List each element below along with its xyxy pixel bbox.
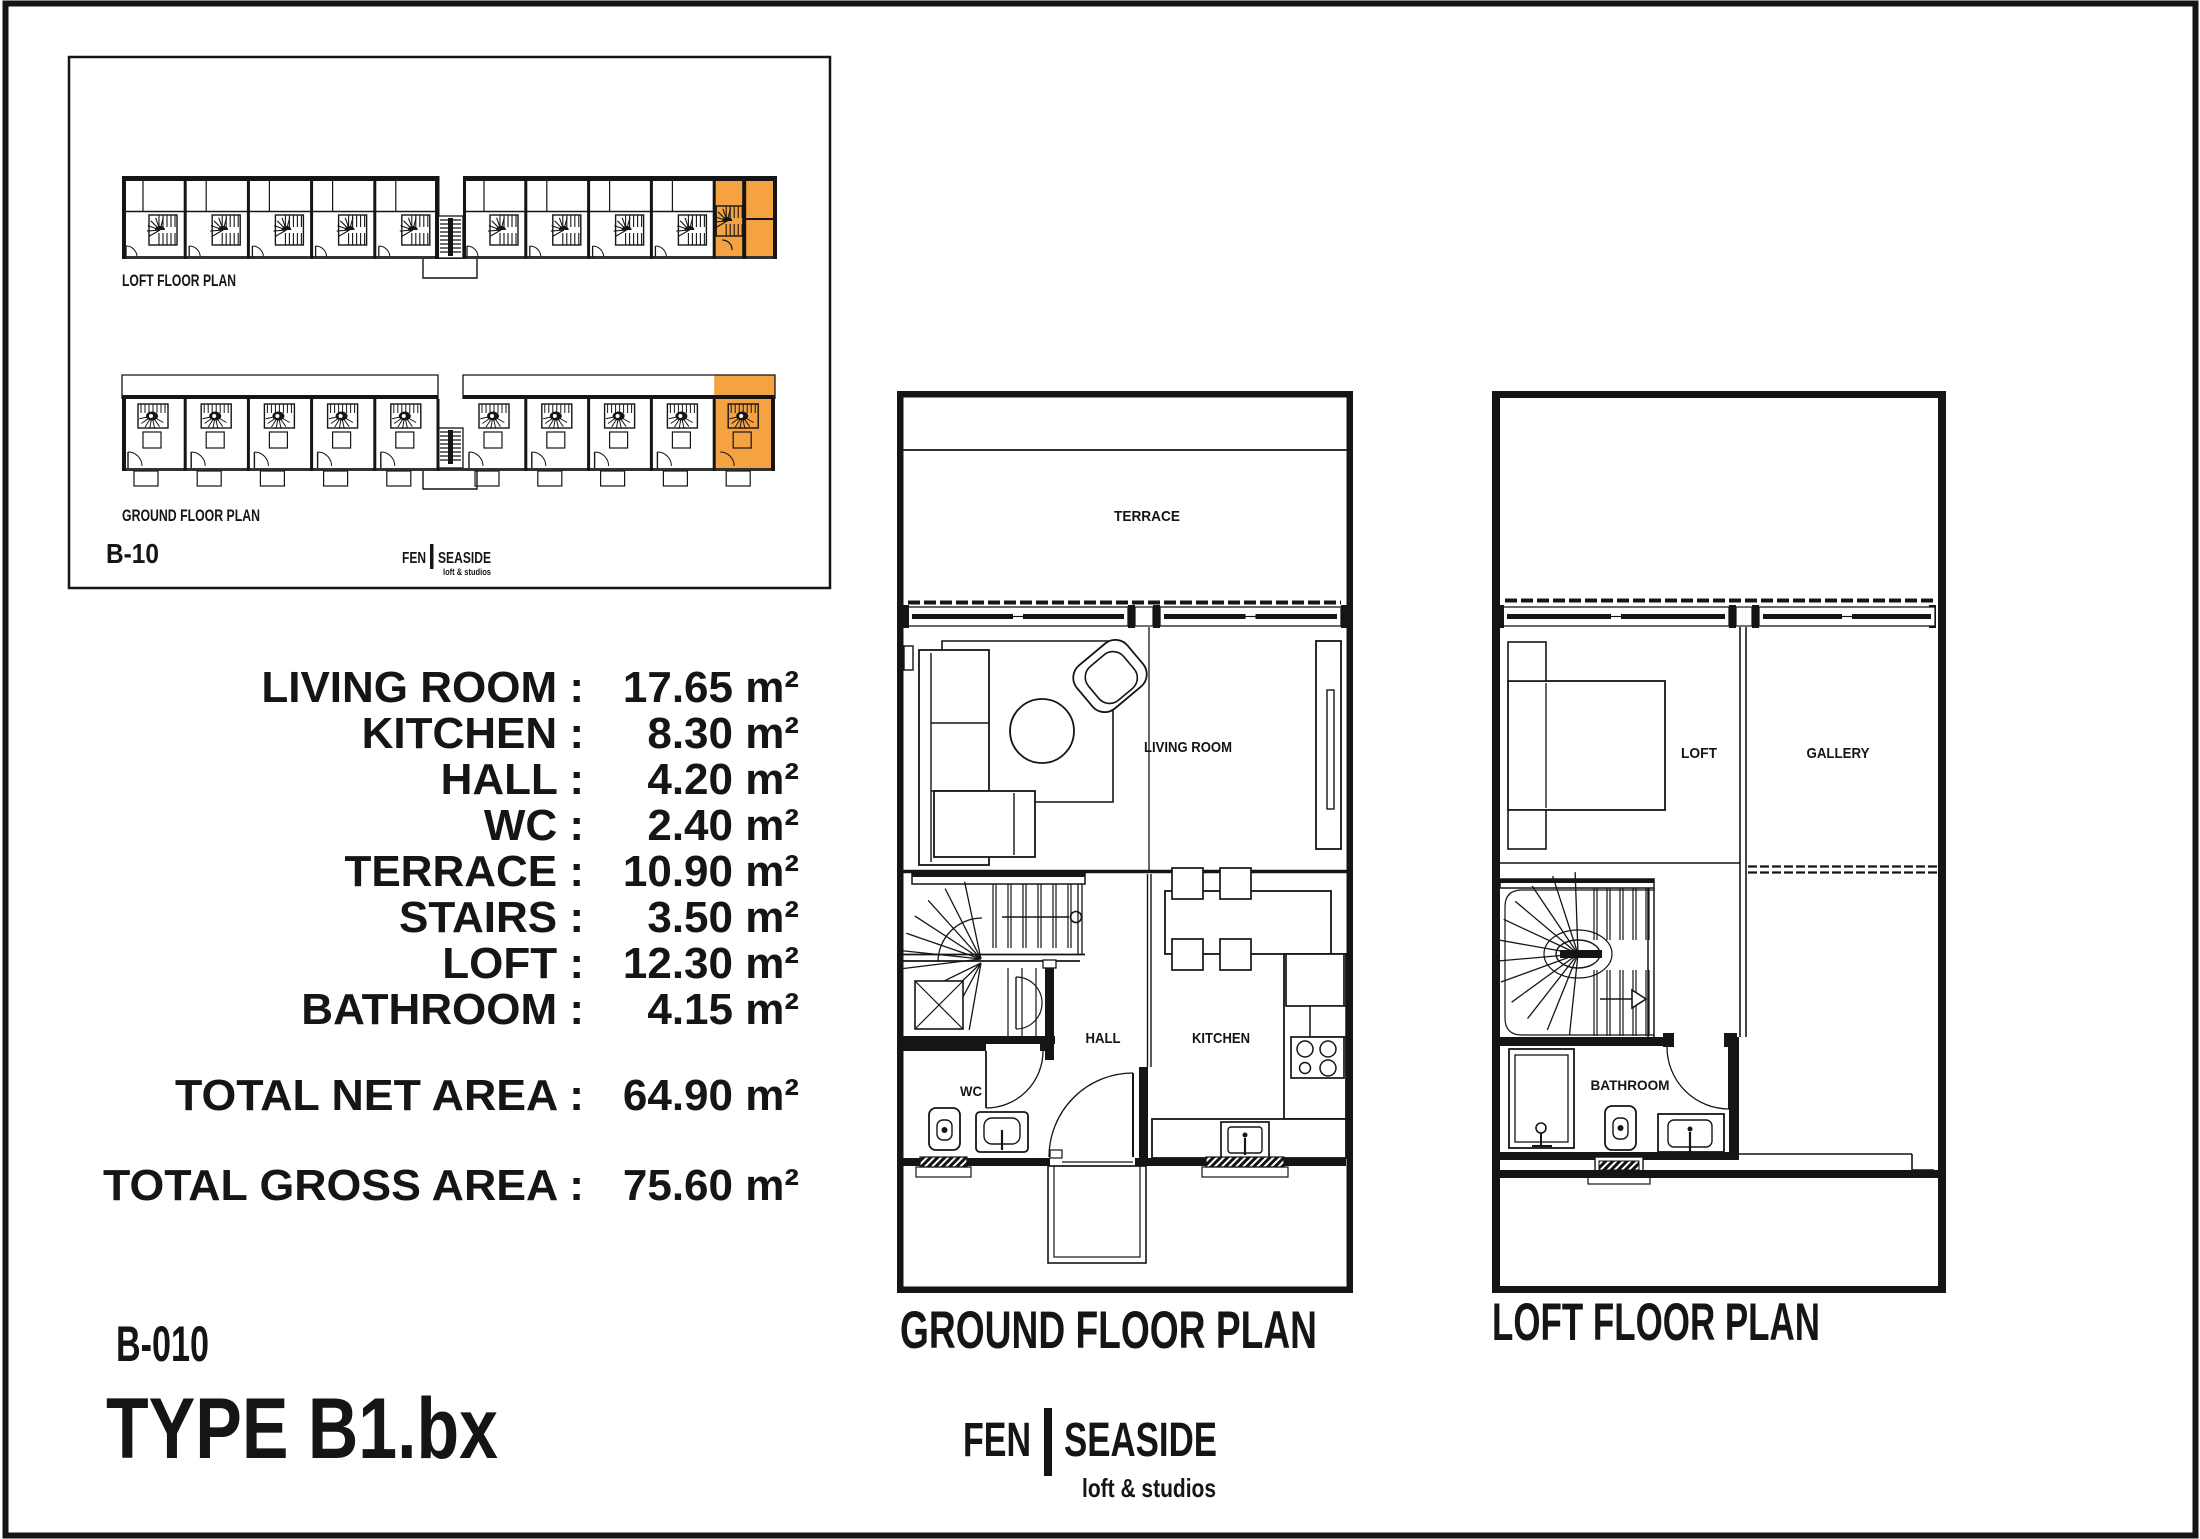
svg-text:GROUND FLOOR PLAN: GROUND FLOOR PLAN [900, 1301, 1317, 1360]
svg-text:LOFT: LOFT [1681, 745, 1717, 762]
svg-text:LOFT FLOOR PLAN: LOFT FLOOR PLAN [122, 271, 236, 290]
svg-text:GROUND FLOOR PLAN: GROUND FLOOR PLAN [122, 506, 260, 525]
svg-text:2.40 m²: 2.40 m² [647, 801, 799, 850]
svg-text:loft & studios: loft & studios [443, 567, 491, 578]
svg-text:TERRACE: TERRACE [1114, 508, 1180, 525]
svg-text:TERRACE :: TERRACE : [344, 847, 584, 896]
svg-text:TOTAL NET AREA :: TOTAL NET AREA : [175, 1071, 584, 1120]
svg-text:SEASIDE: SEASIDE [1064, 1414, 1217, 1467]
svg-text:TYPE B1.bx: TYPE B1.bx [106, 1381, 498, 1477]
svg-text:B-10: B-10 [106, 538, 159, 569]
svg-text:KITCHEN :: KITCHEN : [362, 709, 584, 758]
svg-text:3.50 m²: 3.50 m² [647, 893, 799, 942]
svg-text:GALLERY: GALLERY [1807, 745, 1870, 762]
svg-text:B-010: B-010 [116, 1316, 209, 1372]
svg-text:HALL: HALL [1086, 1030, 1121, 1047]
svg-text:WC :: WC : [484, 801, 584, 850]
svg-text:4.20 m²: 4.20 m² [647, 755, 799, 804]
svg-text:LOFT :: LOFT : [442, 939, 584, 988]
svg-text:BATHROOM :: BATHROOM : [301, 985, 584, 1034]
svg-text:64.90 m²: 64.90 m² [623, 1071, 799, 1120]
svg-text:BATHROOM: BATHROOM [1591, 1078, 1670, 1093]
svg-text:LIVING ROOM: LIVING ROOM [1144, 739, 1232, 756]
svg-text:loft & studios: loft & studios [1082, 1473, 1216, 1503]
svg-text:FEN: FEN [963, 1414, 1031, 1467]
svg-text:STAIRS :: STAIRS : [399, 893, 584, 942]
svg-text:LOFT FLOOR PLAN: LOFT FLOOR PLAN [1492, 1293, 1820, 1352]
svg-text:TOTAL GROSS AREA :: TOTAL GROSS AREA : [103, 1161, 584, 1210]
svg-text:HALL :: HALL : [441, 755, 584, 804]
svg-text:KITCHEN: KITCHEN [1192, 1030, 1250, 1047]
svg-text:10.90 m²: 10.90 m² [623, 847, 799, 896]
svg-text:17.65 m²: 17.65 m² [623, 663, 799, 712]
svg-text:WC: WC [960, 1084, 982, 1099]
svg-text:LIVING ROOM :: LIVING ROOM : [261, 663, 584, 712]
svg-text:8.30 m²: 8.30 m² [647, 709, 799, 758]
svg-text:4.15 m²: 4.15 m² [647, 985, 799, 1034]
svg-text:12.30 m²: 12.30 m² [623, 939, 799, 988]
svg-text:SEASIDE: SEASIDE [438, 550, 491, 567]
svg-text:FEN: FEN [402, 550, 426, 567]
svg-text:75.60 m²: 75.60 m² [623, 1161, 799, 1210]
